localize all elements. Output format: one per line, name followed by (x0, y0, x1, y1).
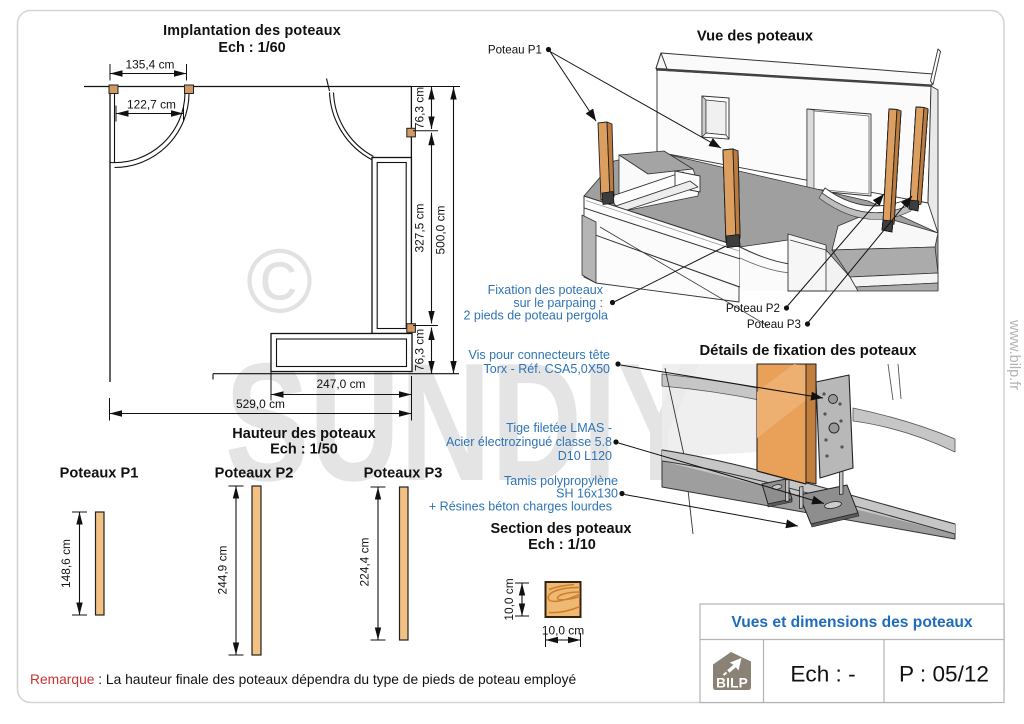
svg-text:Vue des poteaux: Vue des poteaux (697, 29, 814, 45)
svg-text:Ech : 1/60: Ech : 1/60 (218, 40, 285, 56)
svg-text:Tige filetée LMAS -: Tige filetée LMAS - (506, 421, 612, 435)
svg-text:Acier électrozingué classe 5.8: Acier électrozingué classe 5.8 (446, 435, 612, 449)
svg-text:Ech : 1/50: Ech : 1/50 (270, 442, 338, 458)
svg-text:2 pieds de poteau pergola: 2 pieds de poteau pergola (463, 309, 608, 323)
svg-text:76,3 cm: 76,3 cm (413, 87, 427, 129)
svg-text:Remarque : La hauteur finale d: Remarque : La hauteur finale des poteaux… (30, 672, 576, 687)
svg-text:Section des poteaux: Section des poteaux (490, 521, 631, 537)
svg-text:P : 05/12: P : 05/12 (899, 662, 989, 687)
svg-text:Ech : 1/10: Ech : 1/10 (528, 537, 596, 553)
svg-text:Implantation des poteaux: Implantation des poteaux (163, 23, 341, 39)
svg-text:Poteaux P2: Poteaux P2 (215, 466, 294, 482)
svg-text:SH 16x130: SH 16x130 (556, 487, 618, 501)
svg-text:135,4 cm: 135,4 cm (126, 58, 175, 72)
svg-text:247,0 cm: 247,0 cm (317, 377, 366, 391)
svg-text:©: © (246, 232, 313, 333)
svg-text:244,9 cm: 244,9 cm (216, 545, 230, 594)
svg-text:Poteau P3: Poteau P3 (747, 318, 801, 331)
svg-text:Fixation des poteaux: Fixation des poteaux (488, 283, 604, 297)
svg-text:148,6 cm: 148,6 cm (59, 539, 73, 588)
svg-text:BILP: BILP (716, 676, 748, 691)
svg-text:10,0 cm: 10,0 cm (502, 578, 516, 620)
svg-text:Poteau P2: Poteau P2 (726, 302, 780, 315)
svg-text:500,0 cm: 500,0 cm (434, 205, 448, 254)
svg-text:Poteaux P1: Poteaux P1 (60, 466, 139, 482)
svg-text:Hauteur des poteaux: Hauteur des poteaux (232, 426, 375, 442)
svg-text:D10 L120: D10 L120 (558, 449, 612, 463)
svg-text:10,0 cm: 10,0 cm (542, 624, 584, 638)
svg-text:529,0 cm: 529,0 cm (236, 397, 285, 411)
svg-text:Détails de fixation des poteau: Détails de fixation des poteaux (699, 343, 917, 359)
svg-text:Poteau P1: Poteau P1 (488, 44, 542, 57)
svg-text:Ech : -: Ech : - (790, 662, 855, 687)
svg-text:Torx - Réf. CSA5,0X50: Torx - Réf. CSA5,0X50 (484, 362, 610, 376)
svg-text:122,7 cm: 122,7 cm (127, 98, 176, 112)
svg-text:www.bilp.fr: www.bilp.fr (1006, 319, 1022, 390)
svg-text:Vues et dimensions des poteaux: Vues et dimensions des poteaux (731, 614, 973, 631)
svg-text:76,3 cm: 76,3 cm (413, 329, 427, 371)
svg-text:+ Résines béton charges lourde: + Résines béton charges lourdes (429, 500, 612, 514)
svg-text:Vis pour connecteurs tête: Vis pour connecteurs tête (468, 348, 610, 362)
svg-text:327,5 cm: 327,5 cm (413, 203, 427, 252)
svg-text:Poteaux P3: Poteaux P3 (364, 466, 443, 482)
svg-text:224,4 cm: 224,4 cm (358, 537, 372, 586)
